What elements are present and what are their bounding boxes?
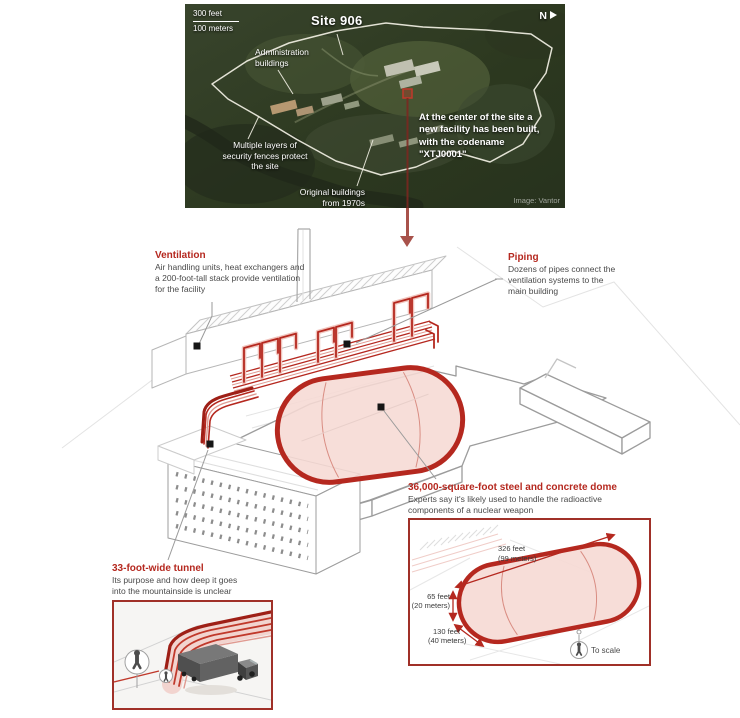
ventilation-body: Air handling units, heat exchangers and … (155, 262, 307, 295)
tunnel-callout: 33-foot-wide tunnel Its purpose and how … (112, 563, 248, 597)
piping-callout: Piping Dozens of pipes connect the venti… (508, 252, 618, 297)
scale-person-small (160, 670, 173, 683)
dome-shape-small (452, 537, 646, 648)
truck-shadow (185, 685, 237, 695)
scale-inset: 326 feet (99 meters) 65 feet (20 meters)… (408, 518, 651, 666)
length-feet: 326 feet (498, 544, 526, 553)
tunnel-inset (112, 600, 273, 710)
piping-body: Dozens of pipes connect the ventilation … (508, 264, 618, 297)
width-feet: 130 feet (433, 627, 461, 636)
tunnel-illustration (114, 602, 271, 708)
dome-body: Experts say it's likely used to handle t… (408, 494, 630, 516)
tunnel-title: 33-foot-wide tunnel (112, 563, 248, 574)
infographic-root: { "colors": { "accent_red": "#b5281f", "… (0, 0, 740, 718)
east-wing (520, 359, 650, 454)
scale-diagram: 326 feet (99 meters) 65 feet (20 meters)… (410, 520, 649, 664)
height-meters: (20 meters) (412, 601, 451, 610)
marker-piping (344, 341, 351, 348)
length-meters: (99 meters) (498, 554, 537, 563)
marker-dome (378, 404, 385, 411)
dome-title: 36,000-square-foot steel and concrete do… (408, 482, 638, 493)
to-scale-label: To scale (591, 646, 621, 655)
to-scale-group: To scale (571, 630, 621, 659)
marker-tunnel (207, 441, 214, 448)
scale-person-large (125, 650, 149, 688)
piping-title: Piping (508, 252, 618, 263)
ventilation-title: Ventilation (155, 250, 307, 261)
ventilation-callout: Ventilation Air handling units, heat exc… (155, 250, 307, 295)
height-feet: 65 feet (427, 592, 451, 601)
dome-callout: 36,000-square-foot steel and concrete do… (408, 482, 638, 516)
tunnel-body: Its purpose and how deep it goes into th… (112, 575, 248, 597)
width-meters: (40 meters) (428, 636, 467, 645)
marker-ventilation (194, 343, 201, 350)
